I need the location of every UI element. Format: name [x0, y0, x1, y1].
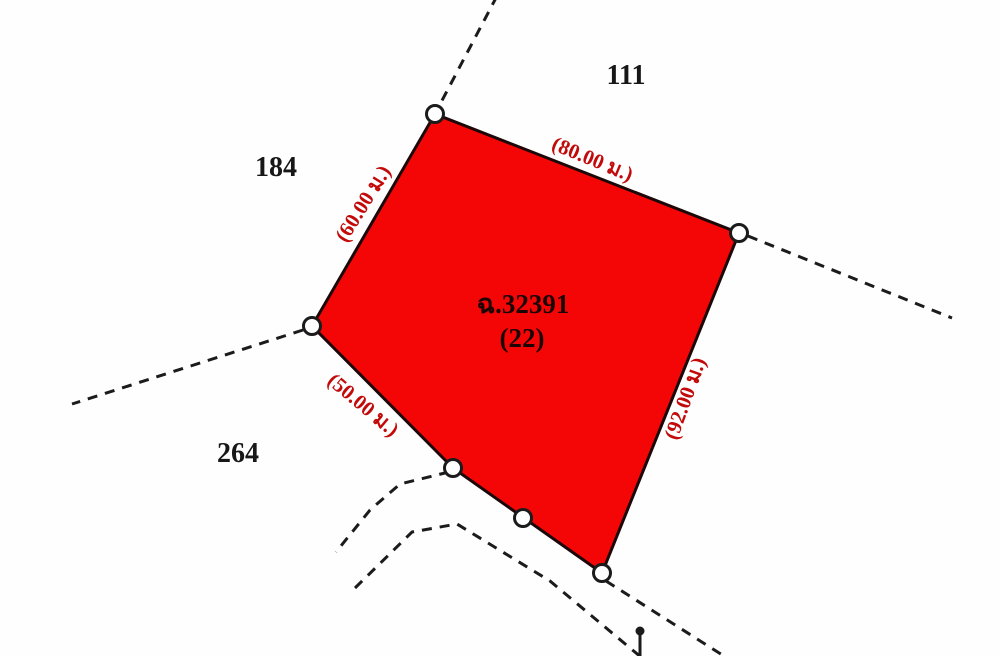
survey-marker-southwest [445, 460, 462, 477]
boundary-line-east [748, 236, 952, 318]
boundary-line-north [437, 0, 497, 110]
survey-marker-south [594, 565, 611, 582]
neighbor-plot-southwest: 264 [217, 438, 259, 469]
survey-marker-top [427, 106, 444, 123]
survey-arrow [636, 627, 645, 656]
survey-marker-east [731, 225, 748, 242]
neighbor-plot-north: 111 [607, 60, 646, 91]
parcel-plot-number: (22) [500, 323, 545, 353]
land-survey-map: 111 184 264 ฉ.32391 (22) (80.00 ม.) (60.… [0, 0, 1000, 656]
survey-arrow-dot [636, 627, 645, 636]
neighbor-plot-west: 184 [255, 152, 297, 183]
survey-marker-west [304, 318, 321, 335]
survey-marker-south-mid [515, 510, 532, 527]
boundary-line-southwest-upper [336, 472, 449, 552]
survey-drawing: 111 184 264 ฉ.32391 (22) (80.00 ม.) (60.… [0, 0, 1000, 656]
parcel-deed-number: ฉ.32391 [477, 289, 570, 319]
boundary-line-west [72, 330, 303, 404]
